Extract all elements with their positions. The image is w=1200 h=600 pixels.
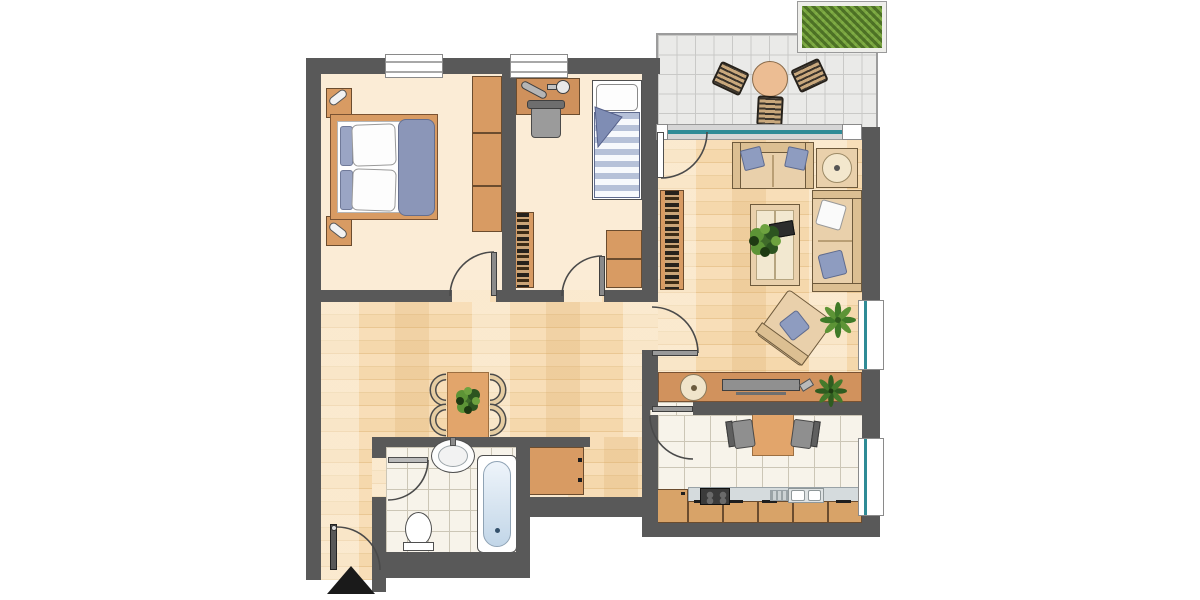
bed-pillow-white-bottom [351,168,396,212]
entrance-door-leaf [330,524,337,570]
kids-room-window [510,54,568,78]
wall-kids-living-divider [642,74,658,302]
single-bed-pillow [596,84,638,111]
kitchen-table [752,414,794,456]
washbasin-faucet [450,437,456,446]
living-doorway-floor [642,302,658,350]
sofa-arm-top [812,190,862,199]
kids-door-leaf [599,256,605,296]
sink-drainer [770,490,788,501]
kitchen-door-leaf [652,406,693,412]
wall-kitchen-bottom [642,523,880,537]
side-table-plate-dot [834,165,840,171]
loveseat-seat-divider [772,155,774,187]
tv-stand [736,392,786,395]
living-room-window [858,300,884,370]
balcony-door-leaf [657,132,664,178]
wardrobe-top [472,76,502,133]
wall-niche-bottom [516,497,658,517]
wall-bath-bottom [372,552,530,578]
loveseat-pillow-right [784,146,809,171]
sofa-arm-bottom [812,283,862,292]
desk-chair-back [527,100,565,109]
bed-blanket [398,119,435,216]
loveseat-arm-left [732,142,741,189]
sofa-seat-divider [818,240,852,242]
wall-top [306,58,660,74]
balcony-glazing [656,124,862,140]
balcony-chair-bottom [756,95,784,126]
balcony-table [752,61,788,97]
single-bed-blanket [594,112,640,198]
bathtub-basin [483,461,511,547]
coffee-table-divider [774,210,776,280]
living-bookshelf [660,190,684,290]
bathroom-door-leaf [388,457,428,463]
wall-left [306,58,321,580]
hall-cabinet-handle-2 [578,478,582,482]
wall-living-kitchen-a [642,402,650,415]
washbasin-inner [438,445,468,467]
desk-lamp-handle [547,84,557,90]
kids-chest-bottom [606,259,642,288]
hall-cabinet-handle-1 [578,458,582,462]
toilet-bowl [405,512,432,546]
desk-magnifier-lamp [556,80,570,94]
kitchen-window [858,438,884,516]
bedroom-door-leaf [491,252,497,296]
tv [722,379,800,391]
cabinet-handle-5 [836,500,851,503]
wardrobe-middle [472,133,502,186]
hallway-floor-entry [321,437,372,580]
sink-basin-left [791,490,805,501]
desk-chair-seat [531,106,561,138]
wall-bath-top [372,437,590,447]
bath-doorway-floor [372,458,386,497]
bed-pillow-white-top [351,123,396,167]
bedroom-doorway-floor [452,290,496,302]
glazing-cap-right [842,124,862,140]
wall-kitchen-left [642,415,658,537]
wall-bedroom-south-b [496,290,564,302]
bedroom-window [385,54,443,78]
dining-table [447,372,489,438]
living-door-leaf [652,350,698,356]
floor-plan [0,0,1200,600]
hall-cabinet [528,447,584,495]
toilet-tank [403,542,434,551]
kitchen-tall-cabinet-handle [681,492,685,495]
kitchen-chair-left [731,419,756,450]
bathtub-drain [495,528,500,533]
kids-chest-top [606,230,642,259]
sink-basin-right [808,490,821,501]
wall-bedroom-south-a [306,290,452,302]
cabinet-handle-2 [728,500,743,503]
stove [700,488,730,505]
wall-living-hall-stub [642,350,658,410]
sofa-back [852,190,862,292]
wall-bedrooms-divider [502,74,516,296]
wall-living-kitchen-b [693,402,862,415]
sideboard-disc-dot [691,385,697,391]
kids-doorway-floor [564,290,604,302]
balcony-planter-hedge [798,2,886,52]
wardrobe-bottom [472,186,502,232]
